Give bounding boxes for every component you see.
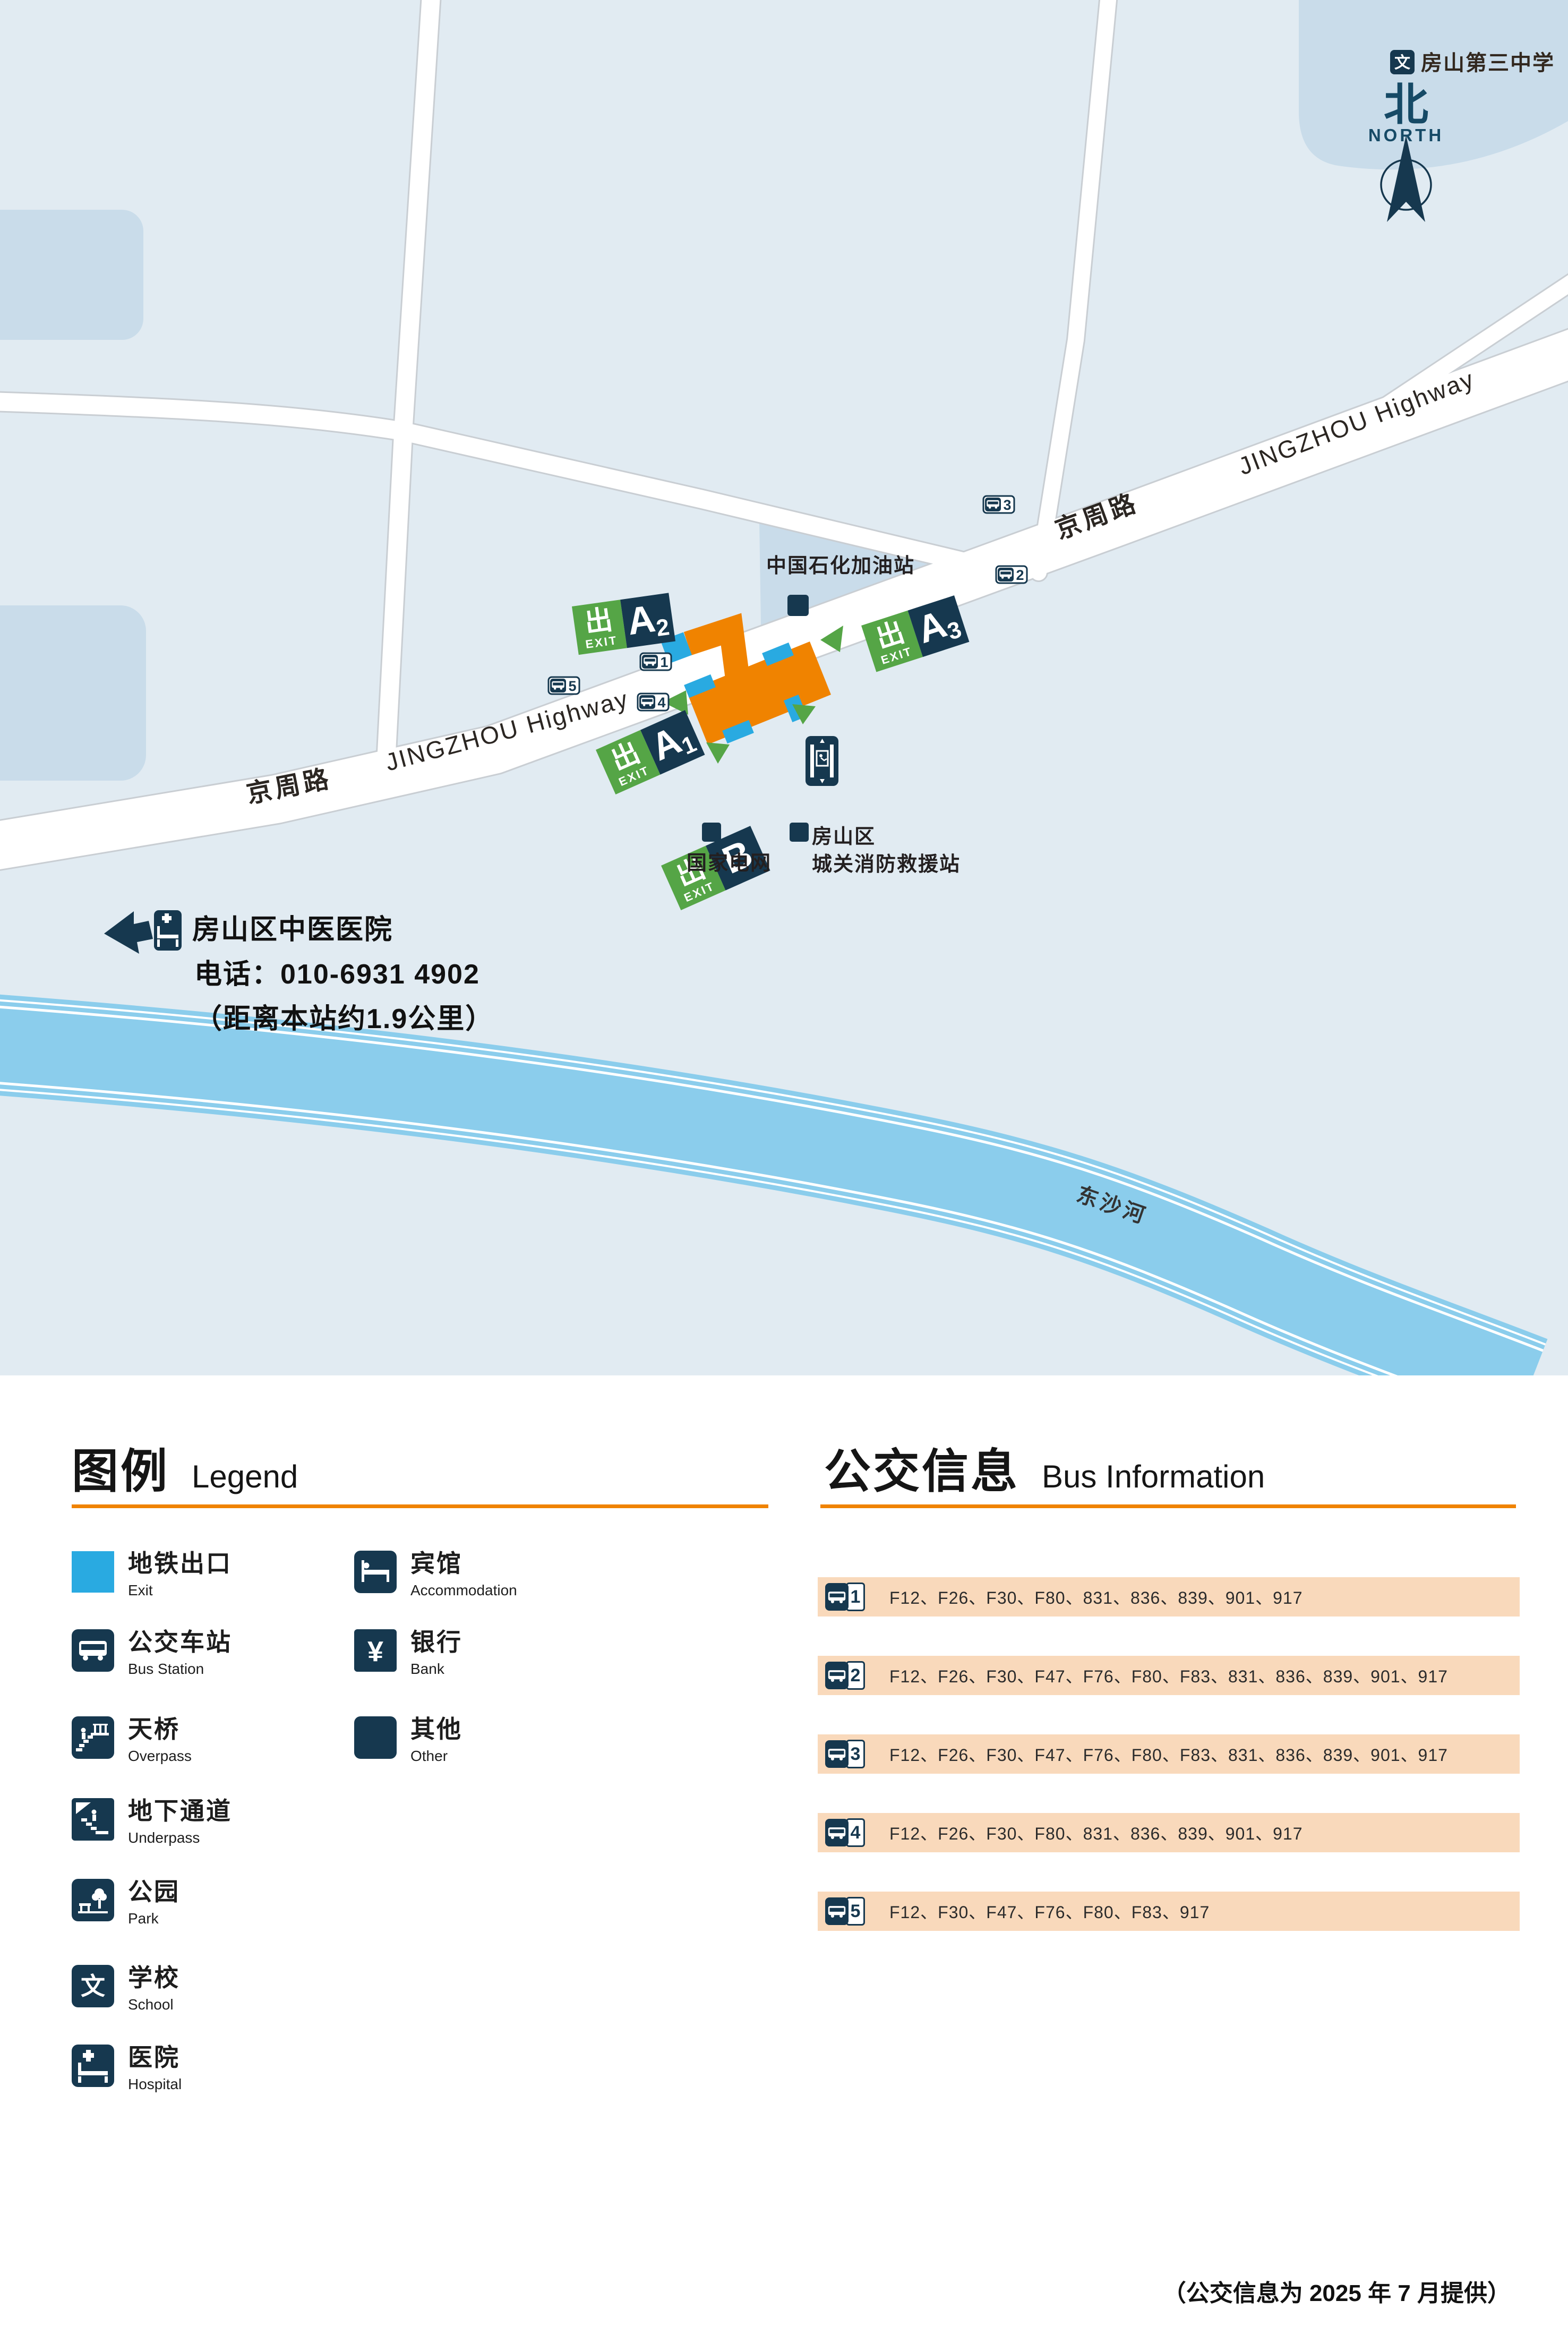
bus-icon <box>825 1819 849 1846</box>
bus-stop-number: 3 <box>846 1740 865 1768</box>
legend-label-en: Accommodation <box>410 1582 517 1599</box>
legend-label-en: Other <box>410 1748 462 1765</box>
legend-rule <box>72 1504 768 1508</box>
bus-stop-badge: 4 <box>825 1818 865 1847</box>
svg-text:文: 文 <box>81 1972 105 2000</box>
state-grid-label: 国家电网 <box>687 852 772 875</box>
hospital-phone: 电话：010-6931 4902 <box>194 959 480 990</box>
legend-item-school: 文 学校 School <box>72 1958 180 2013</box>
bus-stop-number: 4 <box>846 1818 865 1847</box>
legend-item-exit: 地铁出口 Exit <box>72 1544 232 1599</box>
legend-title-cn: 图例 <box>72 1434 169 1501</box>
bus-icon <box>825 1897 849 1925</box>
map-bus-stop-5: 5 <box>549 677 579 694</box>
school-icon-char: 文 <box>1394 54 1410 72</box>
bus-stop-badge: 2 <box>825 1661 865 1690</box>
legend-item-bus-station: 公交车站 Bus Station <box>72 1623 232 1678</box>
exit-passage-a2 <box>665 644 688 652</box>
legend-item-park: 公园 Park <box>72 1872 180 1927</box>
hospital-name: 房山区中医医院 <box>192 914 393 945</box>
bus-row-2: 2 F12、F26、F30、F47、F76、F80、F83、831、836、83… <box>818 1656 1520 1695</box>
school-legend-icon: 文 <box>72 1965 114 2007</box>
bus-icon <box>825 1662 849 1689</box>
map-bus-stop-2: 2 <box>996 566 1027 583</box>
bus-row-4: 4 F12、F26、F30、F80、831、836、839、901、917 <box>818 1813 1520 1852</box>
north-char: 北 <box>1384 80 1428 130</box>
exit-logo-char: 出 <box>583 604 615 639</box>
bus-info-title-en: Bus Information <box>1042 1458 1265 1495</box>
legend-label-cn: 地下通道 <box>128 1792 232 1827</box>
bus-info-title-cn: 公交信息 <box>824 1434 1019 1501</box>
hospital-legend-icon <box>72 2045 114 2087</box>
accommodation-icon <box>354 1551 397 1593</box>
bus-stop-number: 1 <box>846 1583 865 1611</box>
legend-label-cn: 其他 <box>410 1710 462 1745</box>
bus-stop-number: 1 <box>660 654 668 670</box>
legend-label-en: Overpass <box>128 1748 192 1765</box>
park-icon <box>72 1879 114 1921</box>
fire-station-marker <box>790 823 809 842</box>
elevator-icon <box>806 736 838 786</box>
bus-row-5: 5 F12、F30、F47、F76、F80、F83、917 <box>818 1892 1520 1931</box>
bank-icon: ¥ <box>354 1629 397 1672</box>
map-bus-stop-4: 4 <box>638 694 669 711</box>
legend-label-cn: 天桥 <box>128 1710 192 1745</box>
bus-row-1: 1 F12、F26、F30、F80、831、836、839、901、917 <box>818 1577 1520 1617</box>
legend-title-en: Legend <box>192 1458 298 1495</box>
legend-label-en: Bank <box>410 1661 462 1678</box>
state-grid-marker <box>702 823 721 842</box>
legend-label-en: Bus Station <box>128 1661 232 1678</box>
bus-info-provided-note: （公交信息为 2025 年 7 月提供） <box>1163 2274 1511 2308</box>
legend-label-cn: 公交车站 <box>128 1623 232 1658</box>
bus-stop-number: 2 <box>1016 567 1024 583</box>
bus-routes: F12、F26、F30、F80、831、836、839、901、917 <box>889 1820 1303 1845</box>
legend-label-cn: 医院 <box>128 2038 182 2073</box>
legend-label-cn: 学校 <box>128 1958 180 1994</box>
map-bus-stop-1: 1 <box>640 653 671 670</box>
bus-stop-number: 3 <box>1003 497 1011 513</box>
bus-stop-badge: 1 <box>825 1583 865 1611</box>
legend-label-cn: 公园 <box>128 1872 180 1908</box>
legend-item-other: 其他 Other <box>354 1710 462 1765</box>
legend-label-en: School <box>128 1996 180 2013</box>
other-icon <box>354 1716 397 1759</box>
legend-label-en: Hospital <box>128 2076 182 2093</box>
subway-exit-swatch-icon <box>72 1551 114 1593</box>
block-upper-left <box>0 210 143 340</box>
legend-item-hospital: 医院 Hospital <box>72 2038 182 2093</box>
exit-letter: A <box>624 597 658 643</box>
bus-stop-badge: 5 <box>825 1897 865 1926</box>
bus-info-rule <box>820 1504 1516 1508</box>
station-area-map: 东沙河 京周路 JINGZHOU Highway 京周路 JINGZHOU Hi… <box>0 0 1568 1375</box>
legend-label-en: Park <box>128 1910 180 1927</box>
bus-station-icon <box>72 1629 114 1672</box>
legend-item-overpass: 天桥 Overpass <box>72 1710 192 1765</box>
legend-label-cn: 银行 <box>410 1623 462 1658</box>
bus-routes: F12、F26、F30、F47、F76、F80、F83、831、836、839、… <box>889 1742 1448 1766</box>
bus-stop-number: 5 <box>846 1897 865 1926</box>
hospital-distance: （距离本站约1.9公里） <box>194 1004 494 1034</box>
school-name: 房山第三中学 <box>1421 52 1555 75</box>
legend-label-en: Underpass <box>128 1829 232 1846</box>
bus-stop-badge: 3 <box>825 1740 865 1768</box>
bus-routes: F12、F26、F30、F80、831、836、839、901、917 <box>889 1585 1303 1609</box>
block-left <box>0 605 146 781</box>
station-map-poster: 东沙河 京周路 JINGZHOU Highway 京周路 JINGZHOU Hi… <box>0 0 1568 2352</box>
legend-label-en: Exit <box>128 1582 232 1599</box>
bus-stop-number: 5 <box>568 678 576 694</box>
bus-routes: F12、F26、F30、F47、F76、F80、F83、831、836、839、… <box>889 1663 1448 1688</box>
hospital-icon <box>154 910 182 951</box>
svg-text:¥: ¥ <box>367 1636 383 1667</box>
bus-icon <box>825 1740 849 1768</box>
overpass-icon <box>72 1716 114 1759</box>
bus-stop-number: 2 <box>846 1661 865 1690</box>
legend-item-underpass: 地下通道 Underpass <box>72 1792 232 1846</box>
bus-stop-number: 4 <box>657 695 665 711</box>
bus-icon <box>825 1583 849 1611</box>
fire-station-line2: 城关消防救援站 <box>812 853 961 876</box>
legend-label-cn: 地铁出口 <box>128 1544 232 1579</box>
bus-row-3: 3 F12、F26、F30、F47、F76、F80、F83、831、836、83… <box>818 1734 1520 1774</box>
underpass-icon <box>72 1798 114 1841</box>
bus-routes: F12、F30、F47、F76、F80、F83、917 <box>889 1899 1210 1923</box>
legend-title: 图例 Legend <box>72 1434 298 1501</box>
gas-station-label: 中国石化加油站 <box>766 555 915 577</box>
fire-station-line1: 房山区 <box>812 826 876 848</box>
legend-item-accommodation: 宾馆 Accommodation <box>354 1544 517 1599</box>
gas-station-marker <box>787 595 809 616</box>
legend-label-cn: 宾馆 <box>410 1544 517 1579</box>
legend-item-bank: ¥ 银行 Bank <box>354 1623 462 1678</box>
map-bus-stop-3: 3 <box>983 496 1014 513</box>
bus-info-title: 公交信息 Bus Information <box>824 1434 1265 1501</box>
